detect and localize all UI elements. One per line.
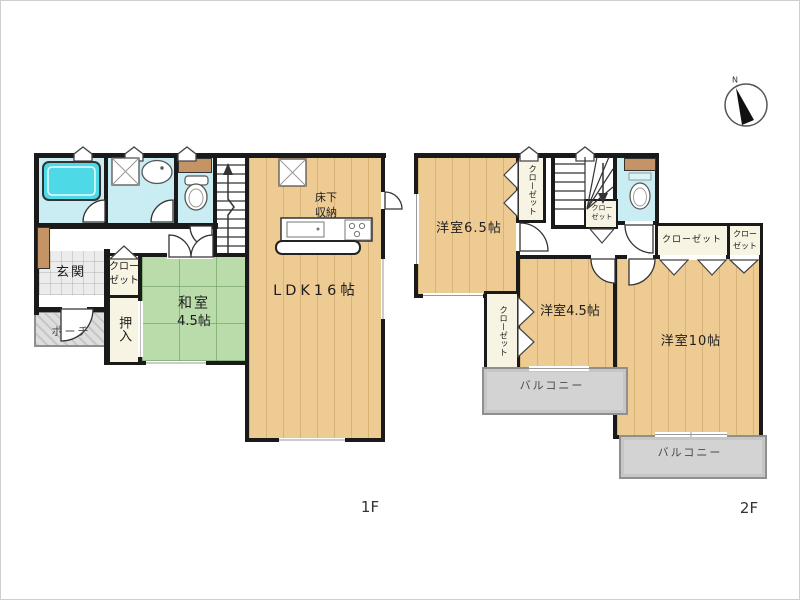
- label-closet-45: クローゼット: [497, 306, 506, 357]
- label-balcony-south: バルコニー: [520, 380, 585, 392]
- label-oshiire: 押入: [116, 316, 130, 342]
- label-closet-1f-line1: クロー: [109, 262, 139, 273]
- label-compass-north: N: [732, 77, 738, 86]
- wall-porch-right: [87, 307, 108, 312]
- toilet-1f-shelf: [178, 158, 212, 173]
- toilet-2f-shelf: [624, 158, 656, 171]
- compass-icon: [725, 84, 767, 126]
- label-yoshitsu-10: 洋室10帖: [661, 335, 722, 349]
- staircase-1f: [213, 153, 249, 263]
- label-closet-small-line1: クロー: [733, 231, 757, 240]
- label-washitsu-line1: 和室: [178, 296, 210, 311]
- label-closet-stairs-line2: ゼット: [592, 214, 613, 222]
- label-ldk: LDK16帖: [273, 284, 359, 300]
- label-porch: ポーチ: [52, 326, 91, 338]
- label-floor-2f: 2F: [740, 500, 758, 517]
- label-closet-small-line2: ゼット: [733, 243, 757, 252]
- wall-porch-left: [34, 307, 62, 312]
- label-closet-main: クローゼット: [662, 236, 722, 246]
- label-washitsu-line2: 4.5帖: [177, 315, 211, 329]
- label-floor-1f: 1F: [361, 499, 379, 516]
- wall-1f-water-bottom: [34, 223, 218, 229]
- label-yoshitsu-45: 洋室4.5帖: [540, 305, 600, 319]
- fold-door-under-stairs: [590, 229, 614, 243]
- label-closet-65: クローゼット: [526, 165, 535, 216]
- label-genkan: 玄関: [56, 266, 86, 280]
- floorplan-canvas: 玄関 ポーチ クロー ゼット 押入 和室 4.5帖 LDK16帖 床下 収納 1…: [0, 0, 800, 600]
- room-bathroom: [34, 153, 108, 229]
- wall-accent-entry: [37, 227, 50, 269]
- label-yoshitsu-65: 洋室6.5帖: [436, 222, 502, 236]
- label-closet-stairs-line1: クロー: [592, 205, 613, 213]
- wall-2f-top: [414, 153, 659, 158]
- label-balcony-east: バルコニー: [658, 447, 723, 459]
- room-washroom: [104, 153, 178, 229]
- label-yukashita-line2: 収納: [315, 207, 337, 219]
- label-yukashita-line1: 床下: [315, 192, 337, 204]
- label-closet-1f-line2: ゼット: [109, 276, 139, 287]
